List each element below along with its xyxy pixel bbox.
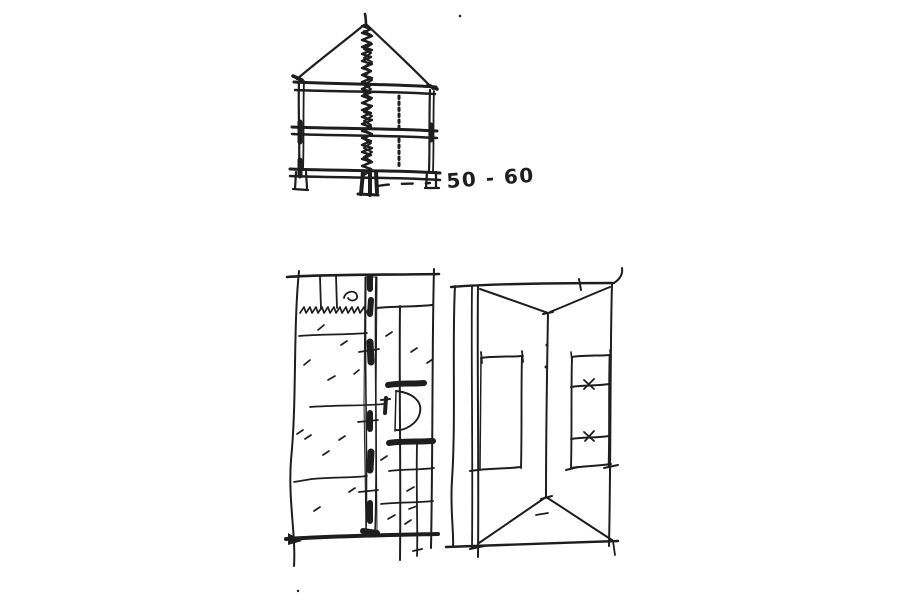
roof-left-slope (297, 25, 364, 79)
dashed-ground-line (378, 183, 430, 186)
roof-plan-sketch (446, 268, 622, 557)
tick-mark (354, 370, 359, 374)
partition-right-2 (389, 468, 434, 471)
architectural-sketch: 50 - 60 (0, 0, 900, 600)
tick-mark (381, 456, 387, 460)
footings (293, 172, 439, 195)
heavy-wall-stub-upper (388, 383, 424, 385)
x-mark-2 (584, 431, 594, 441)
right-skylight-opening (566, 350, 618, 470)
left-column-inner (303, 81, 304, 170)
tick-mark (339, 436, 345, 440)
skylight-right-left-edge (571, 357, 572, 468)
tick-mark (297, 430, 303, 434)
roof-right-slope (366, 24, 433, 89)
wall-bottom-blob (363, 531, 377, 533)
corridor-vertical-2 (417, 443, 418, 556)
tick-mark (409, 506, 417, 509)
skylight-right-right-edge (609, 355, 610, 467)
ridge-dash-mark (536, 513, 548, 515)
stair-area (300, 276, 372, 313)
ridge-dot-1 (546, 344, 549, 347)
sketchbook-page: 50 - 60 (0, 0, 900, 600)
skylight-right-top (572, 355, 611, 357)
plan-boundary (286, 269, 439, 566)
tick-mark (405, 520, 411, 524)
center-footing-base (358, 194, 378, 195)
pen-speck (459, 15, 462, 18)
hatched-partition-scribble (300, 307, 372, 313)
roof-wall-band-line-1 (472, 287, 473, 548)
plan-right-edge (431, 269, 434, 548)
hip-bottom-left (479, 497, 546, 543)
roof-bottom-right-tick (613, 541, 615, 555)
tick-mark (413, 549, 422, 551)
hip-top-right (550, 287, 610, 312)
tick-mark (341, 341, 347, 345)
hip-top-left (480, 289, 548, 313)
building-section-sketch: 50 - 60 (290, 14, 536, 195)
tick-mark (407, 487, 414, 491)
dimension-annotation: 50 - 60 (446, 163, 536, 193)
tick-mark (411, 348, 417, 352)
roof-top-edge (451, 283, 614, 287)
partition-right-top (377, 305, 432, 308)
floor-plan-sketch (286, 269, 439, 566)
x-mark-1 (584, 379, 594, 389)
plan-left-edge (290, 271, 299, 566)
wall-blob-3 (370, 342, 371, 362)
tick-mark (386, 332, 392, 336)
tick-mark (349, 488, 355, 492)
partition-left-2 (310, 404, 384, 407)
wall-cross-tick-2 (358, 420, 378, 422)
tick-mark (388, 515, 395, 519)
door-pin-head (381, 399, 390, 400)
heavy-wall-stub-lower (389, 441, 433, 443)
central-shaft-scribble (362, 26, 372, 175)
partition-right-3 (381, 501, 433, 504)
tick-mark (323, 451, 329, 455)
roof-top-edge-tick (579, 279, 581, 290)
corridor-vertical (400, 306, 401, 560)
tick-mark (304, 360, 310, 365)
roof-wall-band-line-2 (478, 286, 479, 557)
tick-mark (305, 435, 311, 439)
plan-top-edge (287, 274, 439, 277)
skylight-left-top (481, 356, 523, 358)
gable-roof-lines (293, 14, 437, 89)
tick-mark (314, 507, 320, 511)
plan-bottom-edge (286, 534, 438, 539)
roof-left-outer-edge (451, 286, 455, 547)
wall-blob-5 (370, 452, 371, 470)
roof-corner-curl (614, 268, 622, 283)
spiral-scribble (344, 292, 357, 301)
hip-and-ridge-lines (479, 287, 612, 543)
pen-speck (297, 590, 299, 592)
skylight-left-right-edge (521, 356, 522, 468)
hip-bottom-right (546, 497, 612, 540)
stair-line-2 (336, 276, 337, 308)
tick-mark (328, 376, 335, 380)
stair-line-1 (320, 277, 321, 309)
partition-left-3 (294, 476, 367, 482)
door-swing-chord (395, 391, 396, 431)
ridge-dot-2 (545, 366, 548, 369)
partition-left-1 (299, 333, 367, 336)
roof-plan-boundary (446, 268, 622, 557)
ridge-line (546, 313, 548, 497)
tick-mark (318, 325, 324, 330)
ground-slab-bottom (290, 176, 440, 180)
roof-apex-tip (365, 14, 366, 27)
skylight-left-left-edge (480, 358, 481, 470)
center-footing (361, 172, 377, 195)
